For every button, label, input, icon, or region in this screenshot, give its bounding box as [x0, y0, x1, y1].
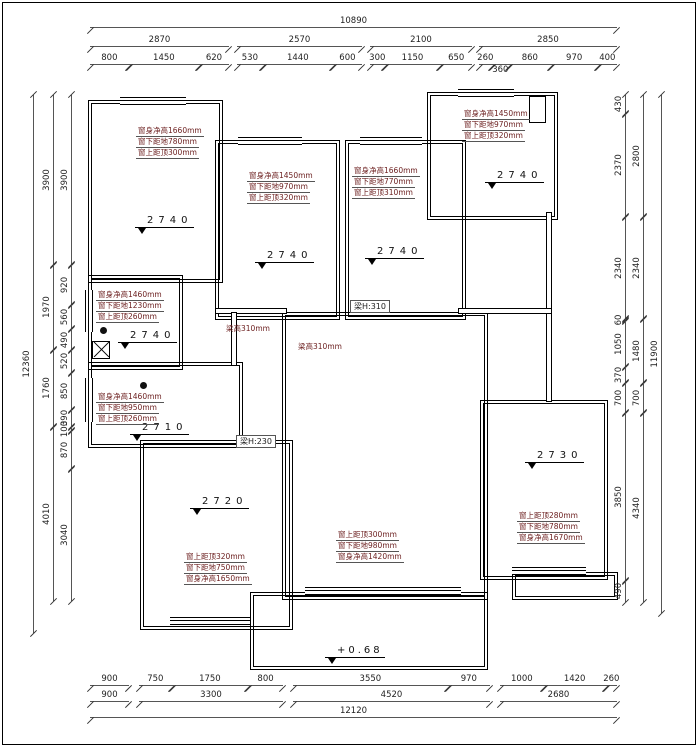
dim-label: 620	[206, 53, 222, 63]
window-labels-top-left: 窗身净高1660mm 窗下距地780mm 窗上距顶300mm	[136, 126, 204, 159]
dim-segment: 430	[612, 95, 626, 114]
dim-segment: 260	[479, 51, 492, 65]
dim-label: 800	[101, 53, 117, 63]
dim-segment: 2680	[500, 688, 617, 702]
dim-top-row3-g3: 300 1150 650	[370, 51, 472, 65]
dim-segment: 3850	[612, 413, 626, 580]
window-labels-bottom-left: 窗上距顶320mm 窗下距地750mm 窗身净高1650mm	[184, 552, 252, 585]
dim-label: 1450	[153, 53, 175, 63]
dim-label: 2680	[548, 690, 570, 700]
window-label: 窗身净高1660mm	[136, 126, 204, 137]
dim-label: 970	[461, 674, 477, 684]
level-marker-bottom-left: 2720	[190, 496, 249, 509]
dim-segment: 11900	[648, 95, 662, 613]
dim-label: 260	[603, 674, 619, 684]
window-label: 窗身净高1450mm	[462, 109, 530, 120]
level-marker-right: 2730	[525, 450, 584, 463]
dim-segment: 800	[90, 51, 129, 65]
window-labels-top-middle-right: 窗身净高1660mm 窗下距地770mm 窗上距顶310mm	[352, 166, 420, 199]
window-labels-mid-left2: 窗身净高1460mm 窗下距地950mm 窗上距顶260mm	[96, 392, 164, 425]
dim-label: 1420	[564, 674, 586, 684]
window-label: 窗下距地780mm	[136, 137, 199, 148]
window-label: 窗下距地750mm	[184, 563, 247, 574]
wall-corridor-h	[215, 308, 287, 314]
level-marker-top-middle: 2740	[255, 250, 314, 263]
dim-segment: 10890	[90, 14, 617, 28]
dim-label: 530	[242, 53, 258, 63]
dim-label: 4010	[42, 503, 52, 525]
dim-bottom-row2-g4: 2680	[500, 688, 617, 702]
dim-bottom-row2-g2: 3300	[139, 688, 283, 702]
window-mid-left2	[85, 378, 93, 422]
window-label: 窗下距地970mm	[462, 120, 525, 131]
beam-label-1: 梁高310mm	[226, 323, 270, 334]
room-top-middle-walls	[215, 140, 340, 320]
room-right-walls	[480, 400, 608, 580]
dim-bottom-row1-g3: 3550 970	[293, 672, 490, 686]
dim-segment: 300	[370, 51, 385, 65]
dim-label: 2850	[537, 35, 559, 45]
dim-label: 2340	[632, 257, 642, 279]
dim-segment: 970	[448, 672, 490, 686]
pipe-shaft-icon	[529, 96, 546, 123]
window-labels-center: 窗上距顶300mm 窗下距地980mm 窗身净高1420mm	[336, 530, 404, 563]
dim-segment: 860	[509, 51, 551, 65]
dim-label: 1750	[199, 674, 221, 684]
window-label: 窗下距地950mm	[96, 403, 159, 414]
window-label: 窗上距顶260mm	[96, 312, 159, 323]
dim-label: 2570	[289, 35, 311, 45]
window-center-bottom	[305, 587, 461, 595]
dim-segment: 1440	[263, 51, 333, 65]
dim-top-row3-g4: 260 360 860 970 400	[479, 51, 617, 65]
window-label: 窗上距顶320mm	[462, 131, 525, 142]
dim-top-row3-g2: 530 1440 600	[237, 51, 362, 65]
dim-segment: 900	[90, 672, 129, 686]
dim-right-mid: 2800 2340 1480 700 4340	[630, 95, 644, 602]
window-label: 窗上距顶260mm	[96, 414, 159, 425]
dim-label: 2370	[614, 154, 624, 176]
dim-label: 1050	[614, 333, 624, 355]
dim-bottom-total: 12120	[90, 704, 617, 718]
window-top-right	[458, 89, 514, 97]
level-marker-mid-left: 2740	[118, 330, 177, 343]
dim-segment: 1760	[40, 350, 54, 427]
dim-label: 1760	[42, 378, 52, 400]
dim-segment: 3550	[293, 672, 448, 686]
dim-label: 12120	[340, 706, 367, 716]
dim-label: 560	[60, 309, 70, 325]
dim-label: 1970	[42, 297, 52, 319]
dim-label: 3550	[360, 674, 382, 684]
dim-segment: 4010	[40, 427, 54, 601]
dim-segment: 360	[492, 51, 509, 65]
beam-box-h310: 梁H:310	[350, 300, 390, 313]
dim-label: 490	[614, 583, 624, 599]
dim-bottom-row1-g1: 900	[90, 672, 129, 686]
dim-segment: 2100	[370, 33, 472, 47]
window-label: 窗上距顶280mm	[517, 511, 580, 522]
dim-label: 750	[147, 674, 163, 684]
dim-left-mid: 3900 1970 1760 4010	[40, 95, 54, 601]
dim-top-row2-g2: 2570	[237, 33, 362, 47]
dim-label: 3040	[60, 524, 70, 546]
dim-label: 2100	[410, 35, 432, 45]
window-label: 窗上距顶300mm	[336, 530, 399, 541]
dim-segment: 530	[237, 51, 263, 65]
window-right-bottom	[512, 567, 586, 575]
dim-left-inner: 3900 920 560 490 520 850 390 100 870 304…	[58, 95, 72, 601]
dim-label: 300	[369, 53, 385, 63]
wall-beam-h	[458, 308, 552, 314]
dim-label: 370	[614, 367, 624, 383]
dim-segment: 700	[612, 383, 626, 413]
terrace-walls	[250, 592, 488, 670]
dim-label: 860	[522, 53, 538, 63]
window-label: 窗身净高1460mm	[96, 392, 164, 403]
dim-segment: 260	[606, 672, 617, 686]
dim-label: 10890	[340, 16, 367, 26]
window-top-left	[120, 97, 186, 105]
dim-segment: 1000	[500, 672, 544, 686]
dim-segment: 750	[139, 672, 172, 686]
dim-label: 900	[101, 674, 117, 684]
dim-segment: 490	[58, 329, 72, 350]
level-marker-top-left: 2740	[135, 215, 194, 228]
dim-bottom-row2-g3: 4520	[293, 688, 490, 702]
window-bottom-left	[170, 617, 250, 625]
window-label: 窗身净高1660mm	[352, 166, 420, 177]
dim-label: 920	[60, 276, 70, 292]
dim-label: 800	[257, 674, 273, 684]
dim-top-row3-g1: 800 1450 620	[90, 51, 229, 65]
dim-segment: 4340	[630, 413, 644, 602]
level-marker-terrace: +0.68	[325, 645, 385, 658]
dim-segment: 2800	[630, 95, 644, 217]
dim-segment: 800	[248, 672, 283, 686]
dim-label: 650	[448, 53, 464, 63]
dim-top-total: 10890	[90, 14, 617, 28]
window-label: 窗身净高1420mm	[336, 552, 404, 563]
dim-label: 4340	[632, 497, 642, 519]
dim-segment: 4520	[293, 688, 490, 702]
window-label: 窗身净高1670mm	[517, 533, 585, 544]
dim-label: 700	[614, 390, 624, 406]
dim-label: 870	[60, 442, 70, 458]
dim-right-inner: 430 2370 2340 60 1050 370 700 3850 490	[612, 95, 626, 602]
dim-bottom-row1-g2: 750 1750 800	[139, 672, 283, 686]
dim-segment: 1480	[630, 319, 644, 383]
window-label: 窗下距地1230mm	[96, 301, 164, 312]
window-label: 窗上距顶310mm	[352, 188, 415, 199]
dim-label: 400	[599, 53, 615, 63]
dim-segment: 560	[58, 305, 72, 329]
dim-segment: 400	[598, 51, 617, 65]
balcony-right-walls	[512, 572, 618, 600]
dim-segment: 1420	[544, 672, 606, 686]
window-labels-right: 窗上距顶280mm 窗下距地780mm 窗身净高1670mm	[517, 511, 585, 544]
dim-label: 900	[101, 690, 117, 700]
dim-label: 2870	[149, 35, 171, 45]
dim-label: 1440	[287, 53, 309, 63]
level-marker-top-middle-right: 2740	[365, 246, 424, 259]
dim-segment: 3300	[139, 688, 283, 702]
dim-segment: 620	[199, 51, 229, 65]
dim-segment: 520	[58, 350, 72, 373]
dim-label: 4520	[381, 690, 403, 700]
wall-right-connector	[546, 212, 552, 402]
dim-label: 2800	[632, 145, 642, 167]
dim-segment: 870	[58, 431, 72, 469]
beam-box-h230: 梁H:230	[236, 435, 276, 448]
dim-segment: 1450	[129, 51, 199, 65]
dim-label: 3300	[200, 690, 222, 700]
window-top-middle-right	[360, 137, 422, 145]
dim-segment: 650	[440, 51, 472, 65]
dim-segment: 600	[333, 51, 362, 65]
dim-segment: 3900	[58, 95, 72, 265]
dim-segment: 1970	[40, 265, 54, 351]
dim-segment: 2570	[237, 33, 362, 47]
window-label: 窗上距顶320mm	[247, 193, 310, 204]
dim-segment: 920	[58, 265, 72, 305]
dim-label: 12360	[22, 350, 32, 377]
dim-label: 970	[566, 53, 582, 63]
dim-label: 1480	[632, 340, 642, 362]
dim-segment: 2370	[612, 114, 626, 217]
dim-bottom-row1-g4: 1000 1420 260	[500, 672, 617, 686]
dim-segment: 700	[630, 383, 644, 413]
dim-label: 3900	[60, 169, 70, 191]
dim-label: 430	[614, 96, 624, 112]
dim-segment: 370	[612, 367, 626, 383]
window-top-middle	[238, 137, 302, 145]
dim-top-row2-g3: 2100	[370, 33, 472, 47]
dim-segment: 1150	[385, 51, 441, 65]
wall-corridor-v	[231, 312, 237, 366]
window-label: 窗下距地980mm	[336, 541, 399, 552]
dim-label: 850	[60, 383, 70, 399]
dim-label: 700	[632, 390, 642, 406]
dim-label: 3900	[42, 169, 52, 191]
beam-label-2: 梁高310mm	[298, 341, 342, 352]
window-label: 窗上距顶320mm	[184, 552, 247, 563]
dim-top-row2-g4: 2850	[479, 33, 617, 47]
window-label: 窗身净高1650mm	[184, 574, 252, 585]
dim-segment: 850	[58, 373, 72, 410]
dim-right-total: 11900	[648, 95, 662, 613]
dim-segment: 490	[612, 581, 626, 602]
dim-label: 520	[60, 353, 70, 369]
window-label: 窗下距地970mm	[247, 182, 310, 193]
dim-segment: 3040	[58, 469, 72, 601]
window-label: 窗身净高1450mm	[247, 171, 315, 182]
window-labels-mid-left: 窗身净高1460mm 窗下距地1230mm 窗上距顶260mm	[96, 290, 164, 323]
dim-label: 490	[60, 331, 70, 347]
dim-segment: 3900	[40, 95, 54, 265]
dim-segment: 2870	[90, 33, 229, 47]
dim-segment: 1750	[172, 672, 248, 686]
dim-segment: 12120	[90, 704, 617, 718]
dim-segment: 1050	[612, 321, 626, 367]
dim-label: 1000	[511, 674, 533, 684]
window-labels-top-middle: 窗身净高1450mm 窗下距地970mm 窗上距顶320mm	[247, 171, 315, 204]
dim-label: 600	[339, 53, 355, 63]
duct-shaft-icon	[92, 341, 110, 359]
dim-left-total: 12360	[20, 95, 34, 633]
dim-segment: 2850	[479, 33, 617, 47]
dim-top-row2-g1: 2870	[90, 33, 229, 47]
window-mid-left	[85, 290, 93, 332]
window-label: 窗上距顶300mm	[136, 148, 199, 159]
dim-segment: 2340	[630, 217, 644, 319]
level-marker-top-right: 2740	[485, 170, 544, 183]
dim-segment: 12360	[20, 95, 34, 633]
window-label: 窗身净高1460mm	[96, 290, 164, 301]
dim-label: 2340	[614, 257, 624, 279]
window-label: 窗下距地770mm	[352, 177, 415, 188]
dim-label: 11900	[650, 340, 660, 367]
dim-segment: 970	[551, 51, 598, 65]
vent-dot-1	[100, 327, 107, 334]
dim-label: 3850	[614, 486, 624, 508]
window-label: 窗下距地780mm	[517, 522, 580, 533]
window-labels-top-right: 窗身净高1450mm 窗下距地970mm 窗上距顶320mm	[462, 109, 530, 142]
dim-bottom-row2-g1: 900	[90, 688, 129, 702]
vent-dot-2	[140, 382, 147, 389]
dim-segment: 900	[90, 688, 129, 702]
dim-segment: 2340	[612, 217, 626, 319]
dim-label: 1150	[402, 53, 424, 63]
